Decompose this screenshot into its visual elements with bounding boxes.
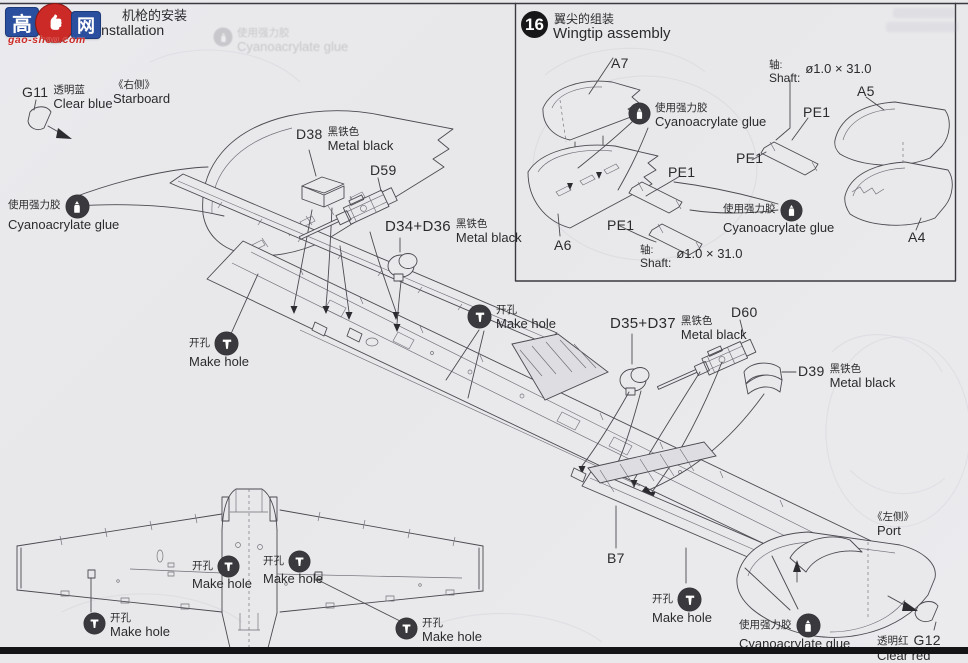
shaft-note-bottom: 轴:Shaft: ø1.0 × 31.0 [640, 245, 743, 270]
label-pe1-d: PE1 [607, 218, 634, 234]
make-hole-icon [396, 618, 417, 639]
bleed-ghost-glue-label: 使用强力胶Cyanoacrylate glue [214, 28, 348, 54]
instruction-sheet: 机枪的安装 Machine gun installation 高 网 gao-s… [0, 0, 968, 654]
make-hole-icon [678, 588, 701, 611]
label-pe1-b: PE1 [736, 151, 763, 167]
watermark-logo: 高 网 gao-shou.com [6, 6, 126, 46]
label-d35-d37: D35+D37 黑铁色Metal black [610, 316, 747, 342]
label-g11: G11 透明蓝Clear blue [22, 85, 113, 111]
make-hole-note-ov4: 开孔Make hole [396, 618, 482, 644]
glue-icon [214, 28, 232, 46]
make-hole-note-ov1: 开孔 Make hole [192, 556, 252, 592]
glue-note-step16-right: 使用强力胶 Cyanoacrylate glue [723, 200, 834, 236]
label-a5: A5 [857, 84, 875, 100]
label-d59: D59 [370, 163, 397, 179]
make-hole-icon [84, 613, 105, 634]
watermark-domain: gao-shou.com [8, 34, 86, 46]
label-d38: D38 黑铁色Metal black [296, 127, 393, 153]
label-pe1-a: PE1 [803, 105, 830, 121]
make-hole-icon [215, 332, 238, 355]
glue-note-main-left: 使用强力胶 Cyanoacrylate glue [8, 195, 119, 233]
bleed-ghost-text [893, 8, 955, 18]
bottom-black-bar [0, 647, 968, 654]
step-title-en: Wingtip assembly [553, 26, 671, 43]
label-d34-d36: D34+D36 黑铁色Metal black [385, 219, 522, 245]
label-port: 《左侧》 Port [872, 512, 914, 538]
label-d39: D39 黑铁色Metal black [798, 364, 895, 390]
glue-note-main-bottom: 使用强力胶 Cyanoacrylate glue [739, 614, 850, 652]
make-hole-icon [218, 556, 239, 577]
make-hole-icon [289, 551, 310, 572]
glue-icon [629, 103, 650, 124]
watermark-char-left: 高 [6, 8, 38, 36]
glue-icon [781, 200, 802, 221]
label-pe1-c: PE1 [668, 165, 695, 181]
make-hole-icon [468, 305, 491, 328]
shaft-note-top: 轴:Shaft: ø1.0 × 31.0 [769, 60, 872, 85]
make-hole-note-c: 开孔 Make hole [652, 588, 712, 626]
label-b7: B7 [607, 551, 625, 567]
make-hole-note-ov3: 开孔Make hole [84, 613, 170, 639]
bleed-ghost-text [886, 22, 958, 32]
label-a4: A4 [908, 230, 926, 246]
make-hole-note-b: 开孔Make hole [468, 305, 556, 331]
label-d60: D60 [731, 305, 758, 321]
make-hole-note-a: 开孔 Make hole [189, 332, 249, 370]
glue-icon [797, 614, 820, 637]
label-starboard: 《右侧》 Starboard [113, 80, 170, 106]
step-number-badge: 16 [521, 11, 548, 38]
label-a7: A7 [611, 56, 629, 72]
make-hole-note-ov2: 开孔 Make hole [263, 551, 323, 587]
glue-icon [66, 195, 89, 218]
label-a6: A6 [554, 238, 572, 254]
glue-note-step16-left: 使用强力胶Cyanoacrylate glue [629, 103, 766, 129]
